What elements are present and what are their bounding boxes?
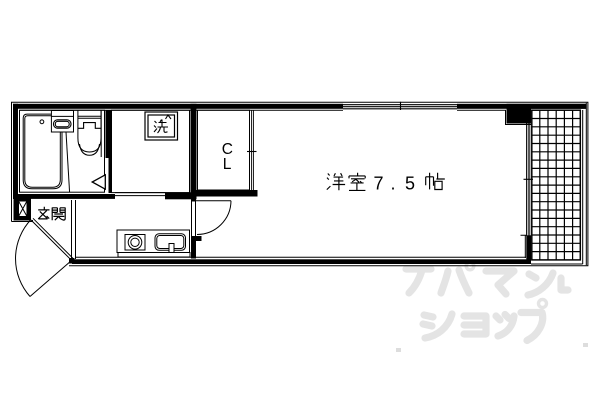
svg-text:.: . — [391, 174, 396, 194]
svg-text:5: 5 — [405, 174, 415, 194]
svg-text:7: 7 — [374, 174, 384, 194]
svg-text:L: L — [223, 156, 232, 173]
